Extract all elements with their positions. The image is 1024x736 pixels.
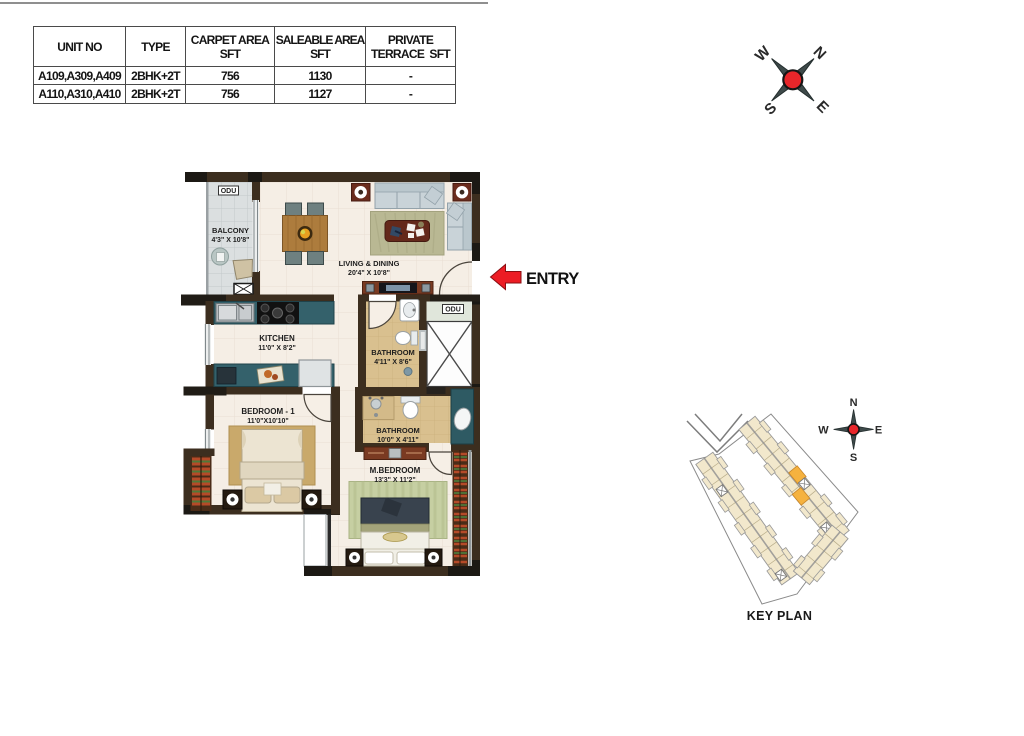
svg-text:W: W bbox=[818, 425, 829, 437]
svg-text:S: S bbox=[850, 452, 857, 464]
svg-text:4'3" X 10'8": 4'3" X 10'8" bbox=[212, 237, 250, 244]
svg-text:ODU: ODU bbox=[445, 307, 461, 314]
svg-text:LIVING & DINING: LIVING & DINING bbox=[339, 259, 400, 268]
svg-text:10'0" X 4'11": 10'0" X 4'11" bbox=[377, 437, 419, 444]
svg-text:ENTRY: ENTRY bbox=[526, 270, 579, 288]
svg-text:11'0"X10'10": 11'0"X10'10" bbox=[247, 418, 289, 425]
svg-text:N: N bbox=[850, 397, 858, 409]
svg-text:KITCHEN: KITCHEN bbox=[259, 334, 295, 343]
svg-text:4'11" X 8'6": 4'11" X 8'6" bbox=[374, 359, 412, 366]
svg-text:S: S bbox=[761, 99, 780, 118]
svg-text:11'0" X 8'2": 11'0" X 8'2" bbox=[258, 345, 296, 352]
svg-text:E: E bbox=[813, 98, 832, 117]
svg-text:ODU: ODU bbox=[221, 188, 237, 195]
svg-text:13'3" X 11'2": 13'3" X 11'2" bbox=[374, 477, 416, 484]
svg-text:20'4" X 10'8": 20'4" X 10'8" bbox=[348, 270, 390, 277]
svg-text:BATHROOM: BATHROOM bbox=[371, 348, 415, 357]
svg-text:W: W bbox=[752, 42, 775, 65]
svg-text:BEDROOM - 1: BEDROOM - 1 bbox=[241, 407, 295, 416]
svg-text:E: E bbox=[875, 425, 882, 437]
svg-text:KEY PLAN: KEY PLAN bbox=[747, 609, 812, 623]
svg-text:BALCONY: BALCONY bbox=[212, 226, 249, 235]
svg-text:M.BEDROOM: M.BEDROOM bbox=[370, 466, 421, 475]
svg-text:BATHROOM: BATHROOM bbox=[376, 426, 420, 435]
